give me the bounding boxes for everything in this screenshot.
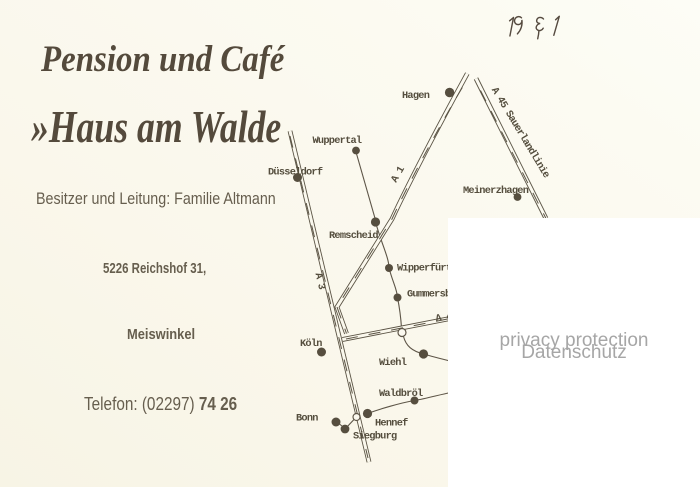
svg-text:Meinerzhagen: Meinerzhagen — [463, 185, 529, 197]
svg-text:Siegburg: Siegburg — [353, 431, 397, 443]
svg-text:Remscheid: Remscheid — [329, 230, 378, 242]
svg-text:Wiehl: Wiehl — [379, 357, 407, 369]
svg-text:Hennef: Hennef — [375, 418, 408, 430]
svg-text:A 3: A 3 — [312, 272, 327, 291]
svg-text:Waldbröl: Waldbröl — [379, 388, 423, 400]
svg-text:Bonn: Bonn — [296, 413, 318, 425]
svg-text:Hagen: Hagen — [402, 90, 430, 102]
svg-text:Köln: Köln — [300, 338, 322, 350]
svg-text:Düsseldorf: Düsseldorf — [268, 167, 323, 179]
svg-text:A 1: A 1 — [389, 164, 408, 185]
